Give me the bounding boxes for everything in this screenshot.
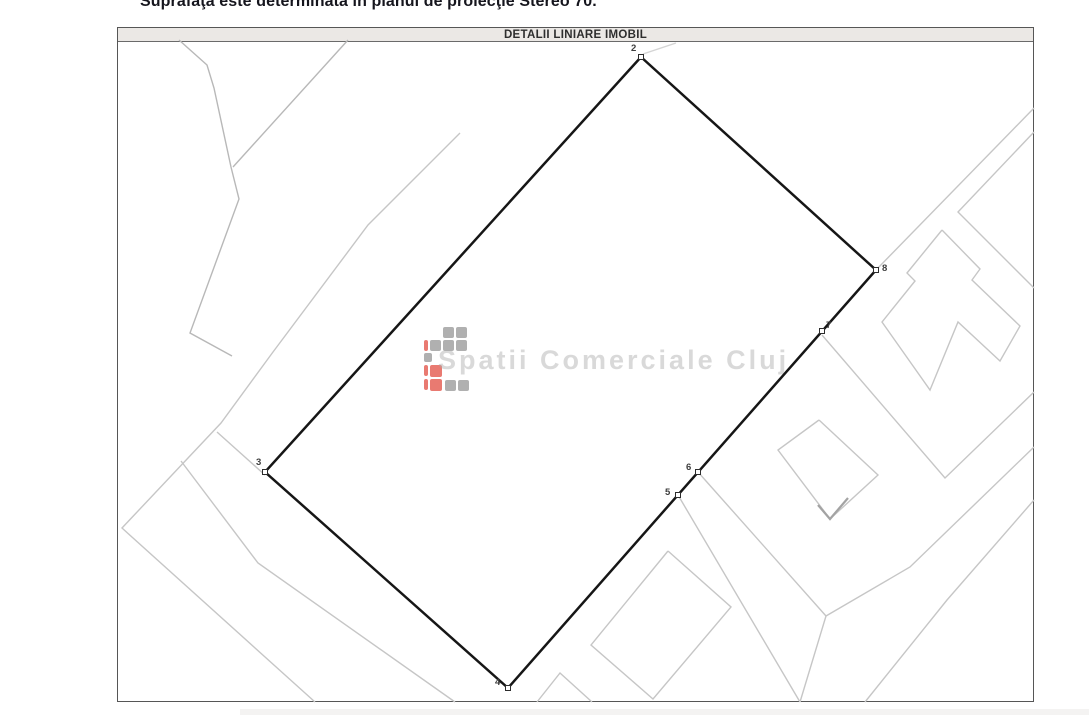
- scan-artifact-band: [240, 709, 1089, 715]
- surface-note: Suprafaţa este determinată în planul de …: [140, 0, 597, 11]
- plan-title-bar: DETALII LINIARE IMOBIL: [118, 28, 1033, 42]
- plan-frame: DETALII LINIARE IMOBIL: [117, 27, 1034, 702]
- plan-title: DETALII LINIARE IMOBIL: [504, 29, 647, 41]
